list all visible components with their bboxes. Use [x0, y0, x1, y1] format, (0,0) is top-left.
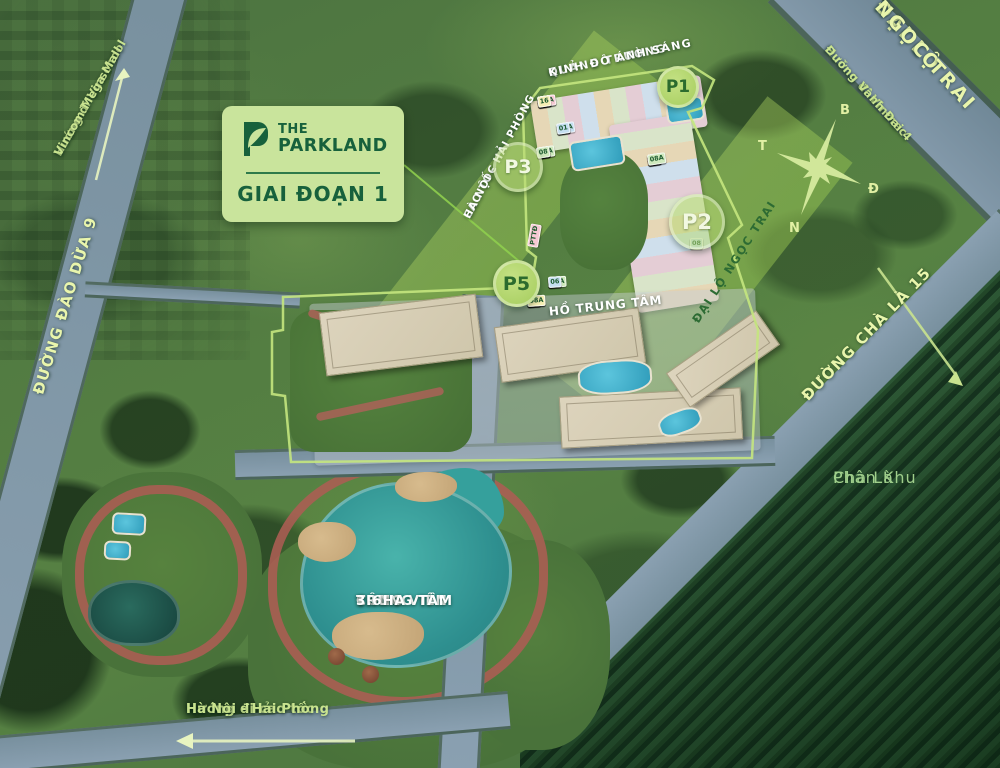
caotoc-direction-line2: Hà Nội - Hải Phòng	[186, 702, 329, 718]
compass-south-label: N	[789, 221, 800, 236]
masterplan-map: B T Đ N 06A080910111212A15A1516 060505A0…	[0, 0, 1000, 768]
compass-north-label: B	[840, 103, 850, 118]
caotoc-arrow-head	[176, 733, 193, 749]
subdivision-label-line2: Chà Là	[833, 466, 894, 491]
plot-chip: 06	[548, 276, 562, 288]
plot-chip: 01	[556, 122, 571, 135]
compass-east-label: Đ	[868, 182, 879, 197]
central-park-line3: 3.6HA	[356, 592, 406, 610]
vinmec-arrow-head	[948, 371, 963, 386]
phase-title: GIAI ĐOẠN 1	[222, 182, 404, 206]
logo-wordmark: THE PARKLAND	[278, 123, 388, 155]
logo-the: THE	[278, 123, 388, 137]
compass-west-label: T	[758, 139, 767, 154]
compass-star	[777, 119, 861, 215]
map-overlay-graphics: B T Đ N	[0, 0, 1000, 768]
phase-marker-p2: P2	[669, 194, 725, 250]
phase-marker-p1: P1	[657, 66, 699, 108]
phase-marker-p5: P5	[493, 260, 540, 307]
logo-divider	[246, 172, 380, 174]
phase-marker-p3: P3	[493, 142, 543, 192]
logo-row: THE PARKLAND	[238, 120, 388, 158]
logo-name: PARKLAND	[278, 137, 388, 155]
parkland-logo-icon	[238, 120, 270, 158]
project-logo-card: THE PARKLAND GIAI ĐOẠN 1	[222, 106, 404, 222]
